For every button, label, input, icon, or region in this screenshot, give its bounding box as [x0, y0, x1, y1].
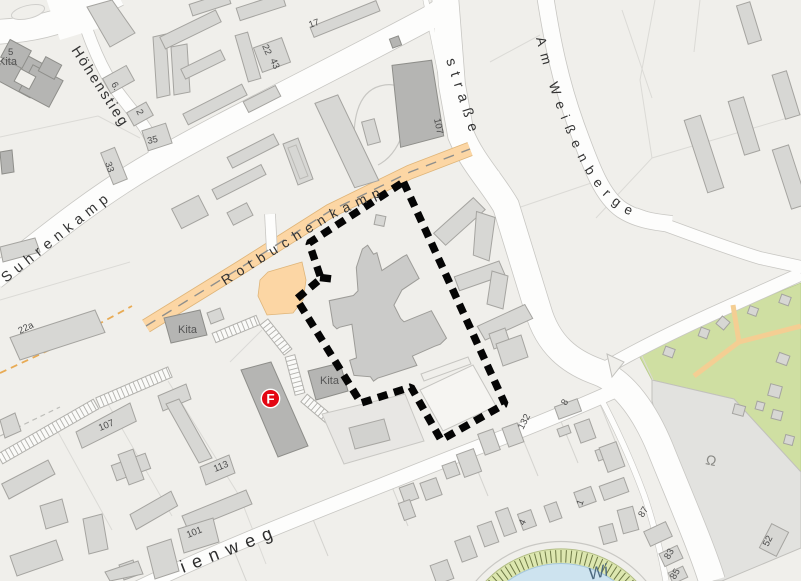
svg-text:Kita: Kita: [320, 375, 340, 387]
svg-text:F: F: [266, 392, 274, 407]
svg-text:Kita: Kita: [0, 56, 18, 68]
svg-text:Kita: Kita: [178, 324, 198, 336]
svg-text:35: 35: [146, 134, 159, 147]
